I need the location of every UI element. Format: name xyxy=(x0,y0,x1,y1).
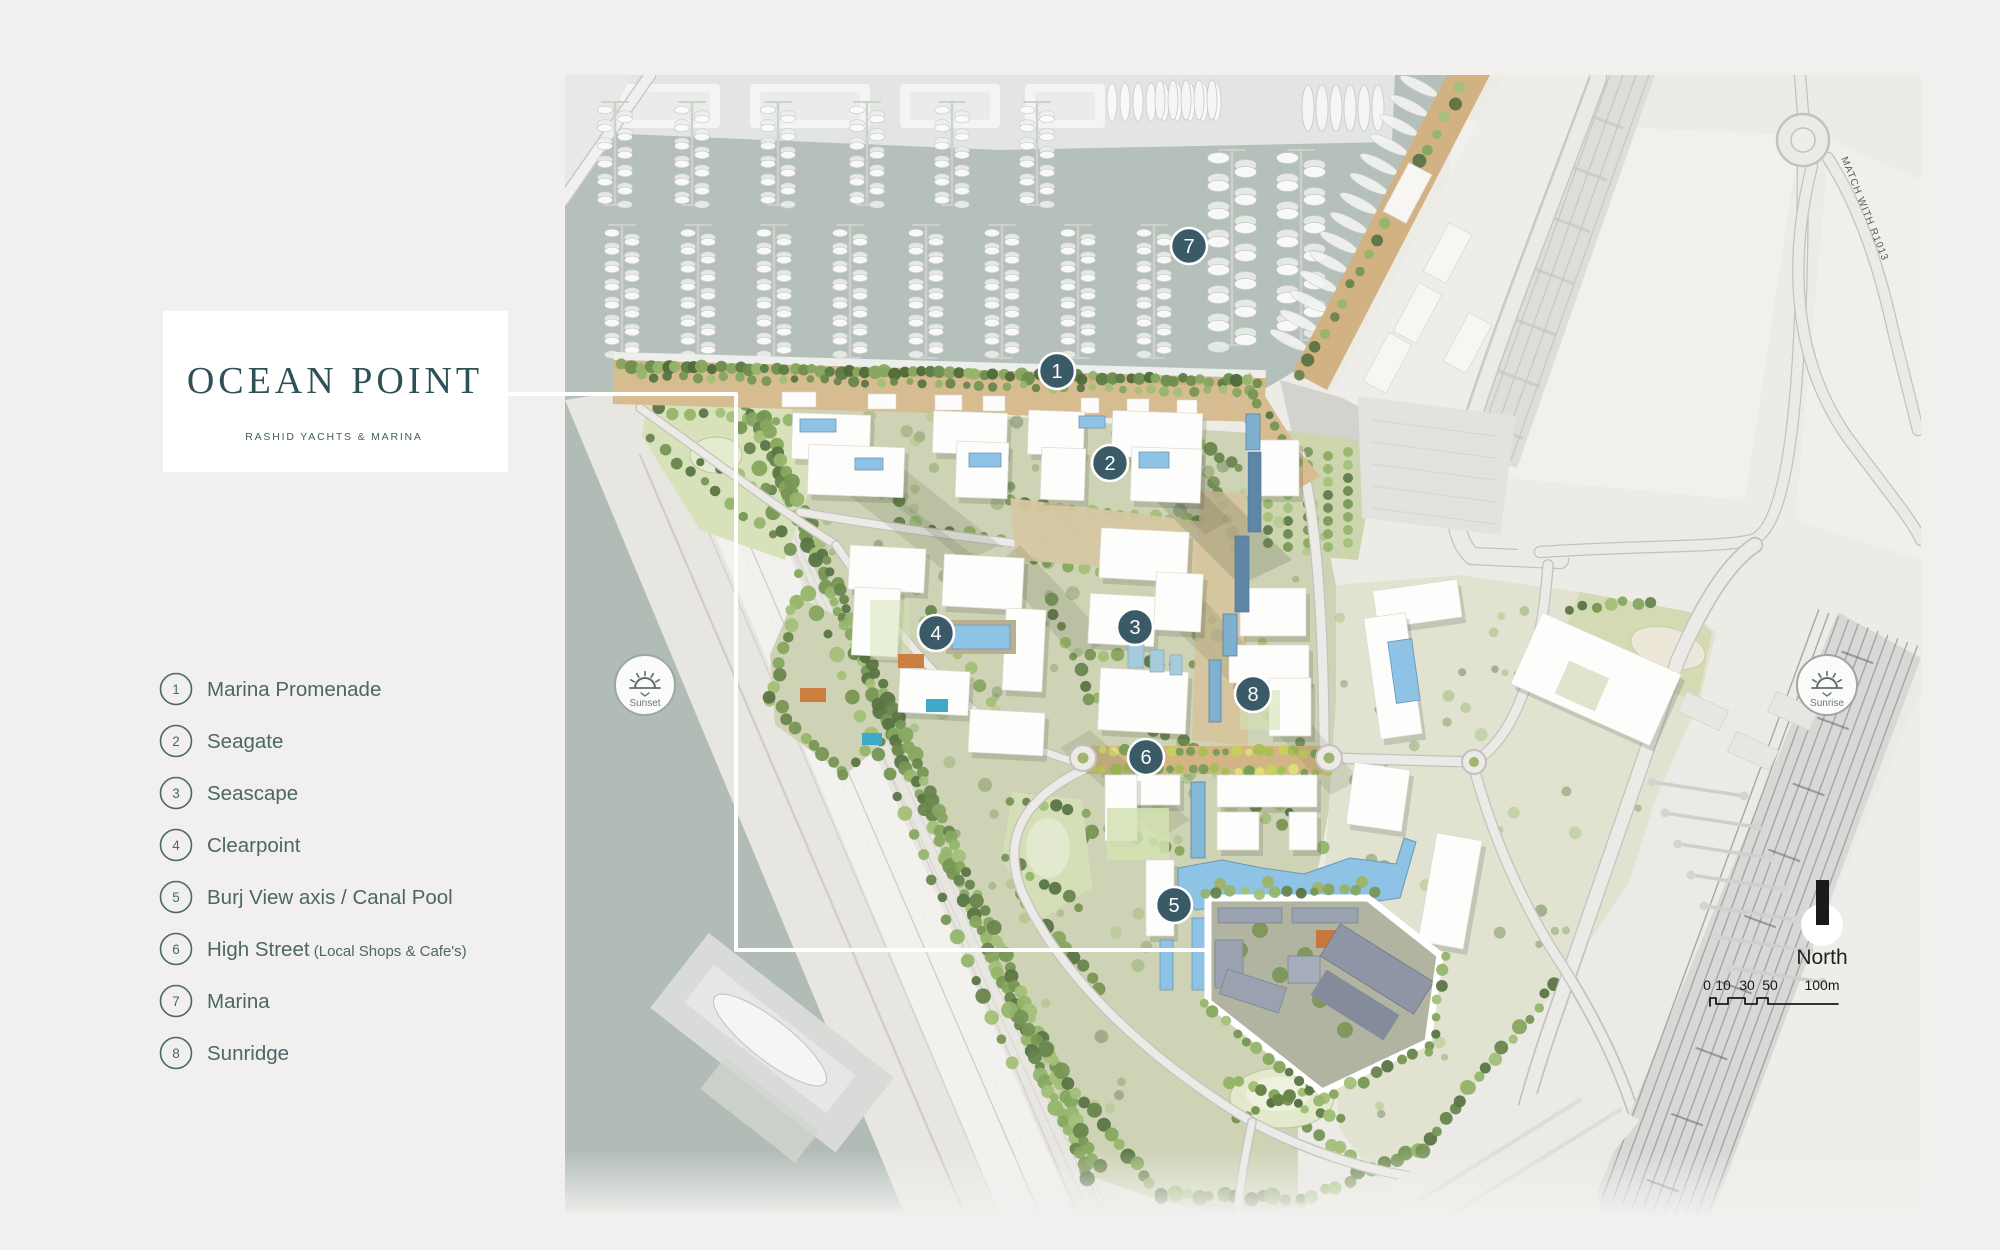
svg-text:6: 6 xyxy=(172,942,180,957)
svg-text:30: 30 xyxy=(1739,977,1755,993)
svg-text:RASHID YACHTS & MARINA: RASHID YACHTS & MARINA xyxy=(245,431,422,443)
svg-text:6: 6 xyxy=(1140,747,1151,769)
svg-text:1: 1 xyxy=(1051,361,1062,383)
svg-text:10: 10 xyxy=(1715,977,1731,993)
svg-text:50: 50 xyxy=(1762,977,1778,993)
svg-text:1: 1 xyxy=(172,682,180,697)
svg-text:3: 3 xyxy=(1129,617,1140,639)
svg-text:Burj View axis / Canal Pool: Burj View axis / Canal Pool xyxy=(207,886,453,909)
svg-text:7: 7 xyxy=(1183,236,1194,258)
svg-text:OCEAN POINT: OCEAN POINT xyxy=(187,360,483,402)
svg-text:North: North xyxy=(1796,946,1847,969)
svg-text:7: 7 xyxy=(172,994,180,1009)
svg-text:4: 4 xyxy=(930,623,941,645)
svg-text:4: 4 xyxy=(172,838,180,853)
svg-text:Seagate: Seagate xyxy=(207,730,283,753)
svg-text:Clearpoint: Clearpoint xyxy=(207,834,301,857)
svg-text:2: 2 xyxy=(1104,453,1115,475)
svg-text:8: 8 xyxy=(172,1046,180,1061)
svg-text:100m: 100m xyxy=(1804,977,1839,993)
svg-text:Sunridge: Sunridge xyxy=(207,1042,289,1065)
svg-text:8: 8 xyxy=(1247,684,1258,706)
svg-text:3: 3 xyxy=(172,786,180,801)
svg-text:Sunset: Sunset xyxy=(629,698,660,709)
svg-text:Marina: Marina xyxy=(207,990,270,1013)
svg-text:2: 2 xyxy=(172,734,180,749)
svg-text:5: 5 xyxy=(172,890,180,905)
svg-text:5: 5 xyxy=(1168,895,1179,917)
svg-text:0: 0 xyxy=(1703,977,1711,993)
svg-text:Marina Promenade: Marina Promenade xyxy=(207,678,381,701)
svg-text:Sunrise: Sunrise xyxy=(1810,698,1844,709)
svg-text:Seascape: Seascape xyxy=(207,782,298,805)
